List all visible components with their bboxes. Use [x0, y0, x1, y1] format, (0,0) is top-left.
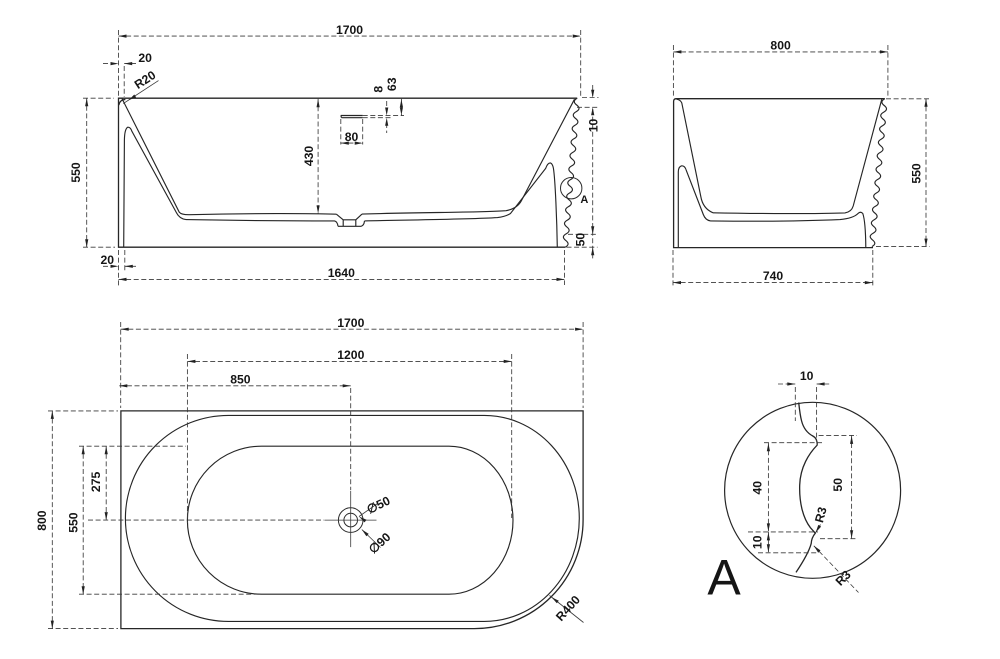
svg-text:A: A [707, 549, 741, 605]
svg-text:275: 275 [89, 472, 103, 493]
svg-text:10: 10 [751, 535, 765, 549]
svg-text:50: 50 [831, 478, 845, 492]
svg-text:800: 800 [35, 510, 49, 531]
svg-text:20: 20 [101, 253, 115, 267]
svg-text:550: 550 [69, 162, 83, 183]
svg-text:40: 40 [751, 481, 765, 495]
svg-text:10: 10 [800, 369, 814, 383]
svg-text:50: 50 [573, 233, 587, 247]
svg-text:430: 430 [302, 146, 316, 167]
svg-text:A: A [580, 194, 588, 206]
svg-text:1200: 1200 [337, 348, 364, 362]
svg-text:800: 800 [770, 38, 791, 52]
svg-text:1640: 1640 [328, 266, 355, 280]
svg-text:850: 850 [230, 372, 251, 386]
svg-text:550: 550 [67, 512, 81, 533]
svg-text:550: 550 [909, 163, 923, 184]
svg-text:1700: 1700 [337, 316, 364, 330]
svg-text:1700: 1700 [336, 23, 363, 37]
svg-text:63: 63 [385, 77, 399, 91]
svg-text:10: 10 [587, 119, 601, 133]
svg-text:740: 740 [763, 269, 784, 283]
svg-text:8: 8 [372, 86, 386, 93]
svg-text:20: 20 [138, 51, 152, 65]
svg-text:80: 80 [345, 130, 359, 144]
